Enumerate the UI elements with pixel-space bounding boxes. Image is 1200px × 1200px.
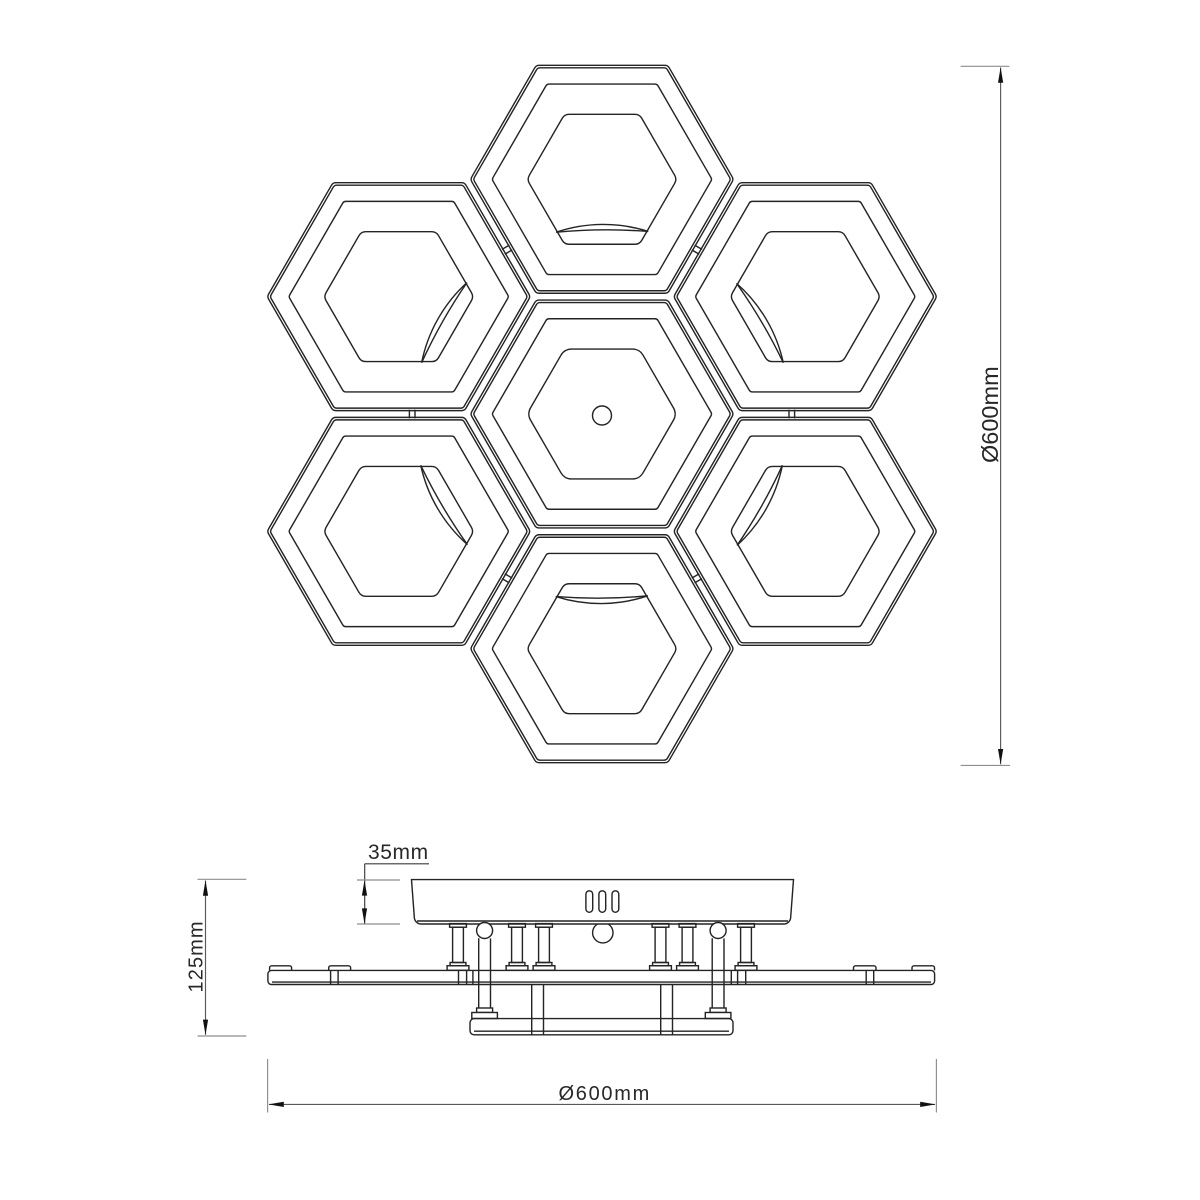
svg-text:125mm: 125mm: [186, 920, 208, 992]
svg-text:Ø600mm: Ø600mm: [559, 1083, 651, 1105]
svg-text:35mm: 35mm: [368, 841, 429, 864]
svg-text:Ø600mm: Ø600mm: [977, 366, 1003, 463]
